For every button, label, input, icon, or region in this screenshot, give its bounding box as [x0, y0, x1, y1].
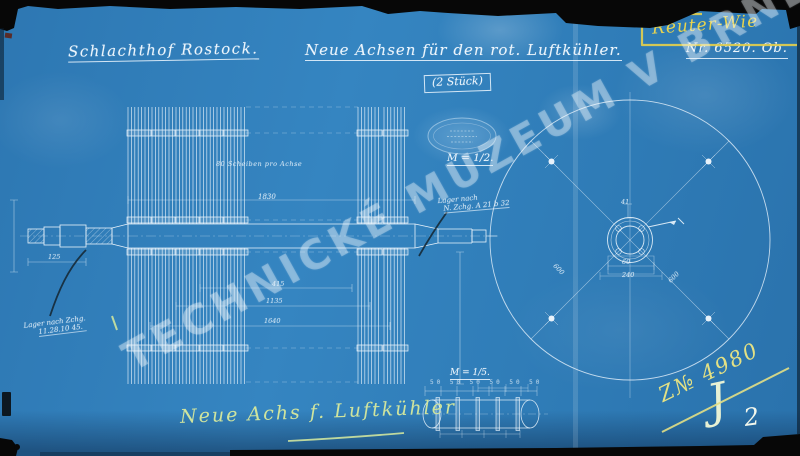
dim-overall-label: 1830 [258, 193, 276, 201]
sheet-letter: J [703, 373, 732, 429]
spoke-radius-left-label: 600 [551, 263, 565, 277]
hub-height-label: 41 [621, 199, 629, 206]
hub-base-label: 240 [622, 272, 634, 279]
rotor-side-view [10, 107, 500, 384]
bottom-title-underline [288, 433, 404, 441]
spoke-radius-right-label: 600 [667, 271, 681, 285]
client-title: Schlachthof Rostock. [68, 40, 259, 63]
quantity-note: (2 Stück) [424, 73, 492, 93]
blueprint-scan: Schlachthof Rostock. Neue Achsen für den… [0, 0, 800, 456]
bottom-handwritten-title: Neue Achs f. Luftkühler [180, 397, 457, 428]
hub-width-label: 60 [622, 259, 630, 266]
dim-c-label: 1640 [264, 318, 281, 325]
sheet-number: 2 [742, 403, 761, 432]
dim-shaft-end-label: 125 [48, 254, 60, 261]
bearing-annotation-left: Lager nach Zchg. 11.28.10 45. [23, 314, 87, 339]
drawing-title: Neue Achsen für den rot. Luftkühler. [305, 42, 622, 61]
detail-tick-labels: 50 50 50 50 50 50 [430, 380, 542, 387]
disc-count-note: 80 Scheiben pro Achse [216, 161, 302, 168]
